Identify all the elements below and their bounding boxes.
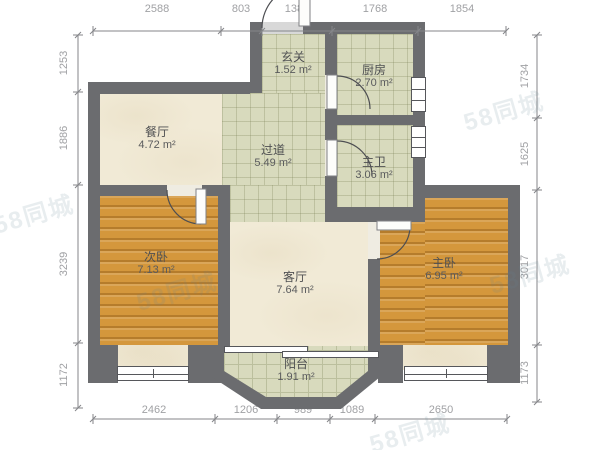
kitchen-window [411,77,426,112]
kitchen-door-threshold [325,75,337,109]
room-name: 客厅 [276,271,313,284]
room-label-entry: 玄关 1.52 m² [274,51,311,77]
dim-label-top-1: 803 [232,3,250,15]
wall [325,207,425,222]
room-name: 阳台 [277,358,314,371]
room-area: 1.52 m² [274,64,311,77]
room-name: 次卧 [137,251,174,264]
wall [303,22,425,34]
watermark: 58同城 [0,184,78,240]
room-label-balcony: 阳台 1.91 m² [277,358,314,384]
dim-label-bottom-1: 1206 [234,404,258,416]
dim-label-left-2: 3239 [58,252,70,276]
dim-label-bottom-2: 989 [294,404,312,416]
wall-bay-pillar [487,345,520,383]
dim-label-left-0: 1253 [58,51,70,75]
wall [325,34,337,75]
window-frame-line [412,147,425,148]
bay-window-sill-left [118,345,188,368]
room-label-kitchen: 厨房 2.70 m² [355,64,392,90]
dim-label-left-3: 1172 [58,363,70,387]
window-frame-line [412,137,425,138]
master-door-threshold [368,222,380,259]
window-frame-line [412,100,425,101]
dim-label-top-2: 1388 [285,3,309,15]
room-area: 3.06 m² [355,169,392,182]
wall-bay-pillar [88,345,118,383]
room-area: 7.13 m² [137,264,174,277]
entry-door-threshold [262,22,303,34]
wall [88,82,250,94]
bath-door-threshold [325,140,337,176]
bath-window [411,126,426,158]
room-area: 6.95 m² [425,270,462,283]
bedroom2-door-threshold [167,185,202,196]
wall-bay-pillar [378,345,403,383]
wall [88,82,100,345]
room-area: 2.70 m² [355,77,392,90]
room-name: 玄关 [274,51,311,64]
wall [325,115,425,125]
floor-master-bedroom-west [380,222,425,345]
watermark: 58同城 [459,81,548,137]
bay-window-left [117,366,189,381]
room-name: 厨房 [355,64,392,77]
room-label-living-room: 客厅 7.64 m² [276,271,313,297]
dim-label-top-0: 2588 [145,3,169,15]
wall [250,22,262,93]
dim-label-right-0: 1734 [519,64,531,88]
wall [413,185,520,198]
dim-label-bottom-4: 2650 [429,404,453,416]
room-label-hallway: 过道 5.49 m² [254,144,291,170]
room-area: 5.49 m² [254,157,291,170]
window-frame-line [412,89,425,90]
room-area: 4.72 m² [138,139,175,152]
wall [508,185,520,357]
window-frame-tick [153,369,154,378]
dim-label-top-3: 1768 [363,3,387,15]
dim-label-right-3: 1173 [519,361,531,385]
dim-label-top-4: 1854 [450,3,474,15]
room-label-master-bath: 主卫 3.06 m² [355,156,392,182]
window-frame-tick [446,369,447,378]
floor-plan: 2588 803 1388 1768 1854 2462 1206 989 10… [0,0,600,450]
room-label-second-bedroom: 次卧 7.13 m² [137,251,174,277]
room-name: 主卫 [355,156,392,169]
room-name: 过道 [254,144,291,157]
floor-hallway-lower [230,185,325,222]
dim-label-right-2: 3017 [519,255,531,279]
wall [218,185,230,360]
room-label-master-bedroom: 主卧 6.95 m² [425,257,462,283]
room-area: 1.91 m² [277,371,314,384]
room-area: 7.64 m² [276,284,313,297]
dim-label-right-1: 1625 [519,142,531,166]
floor-hallway-upper [222,93,325,185]
room-label-dining: 餐厅 4.72 m² [138,126,175,152]
wall [88,185,167,196]
room-name: 餐厅 [138,126,175,139]
dim-label-left-1: 1886 [58,126,70,150]
dim-label-bottom-3: 1089 [340,404,364,416]
dim-label-bottom-0: 2462 [142,404,166,416]
room-name: 主卧 [425,257,462,270]
bay-window-right [404,366,488,381]
